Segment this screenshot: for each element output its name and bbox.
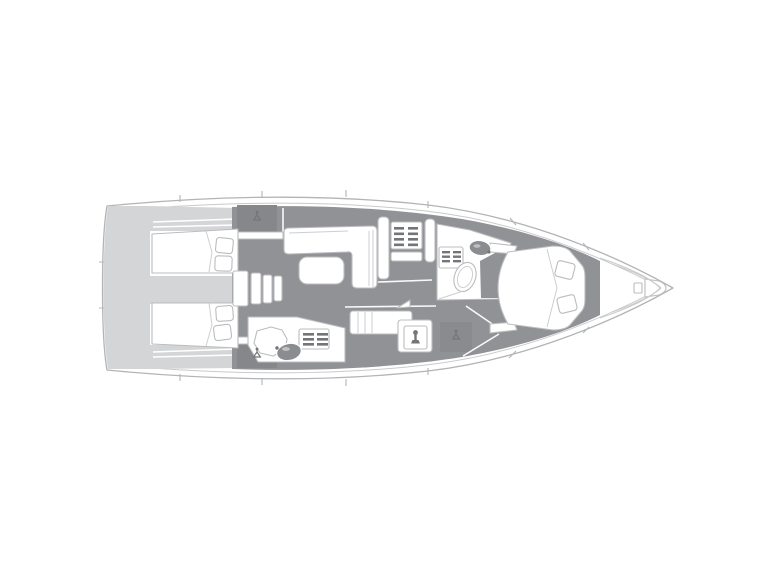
companionway-steps — [233, 271, 282, 306]
basin-highlight — [282, 347, 290, 351]
basin-highlight — [474, 244, 481, 248]
v-berth — [498, 246, 585, 330]
faucet-icon — [275, 346, 278, 349]
lamp-base — [411, 340, 420, 344]
faucet-icon — [487, 250, 490, 253]
stern-step-arm-middle — [150, 276, 234, 304]
step — [274, 276, 282, 301]
locker-mid-block — [440, 322, 472, 352]
boat-floorplan — [0, 0, 768, 576]
pillow — [213, 324, 232, 341]
wardrobe-port — [237, 205, 277, 232]
bow-fitting — [634, 283, 642, 293]
bulkhead-corridor — [345, 306, 436, 307]
step — [251, 273, 261, 304]
galley-counter-right — [425, 219, 435, 262]
salon-table — [299, 257, 344, 284]
step — [233, 271, 248, 306]
shelf-top — [238, 232, 283, 239]
galley-panel — [391, 252, 422, 261]
pillow — [215, 256, 233, 272]
galley-counter-left — [378, 217, 389, 279]
pillow — [215, 237, 233, 254]
step — [263, 275, 272, 303]
pillow — [216, 305, 234, 321]
stern-slab — [104, 206, 151, 369]
boat-floorplan-page — [0, 0, 768, 576]
lamp-stem — [414, 334, 416, 341]
